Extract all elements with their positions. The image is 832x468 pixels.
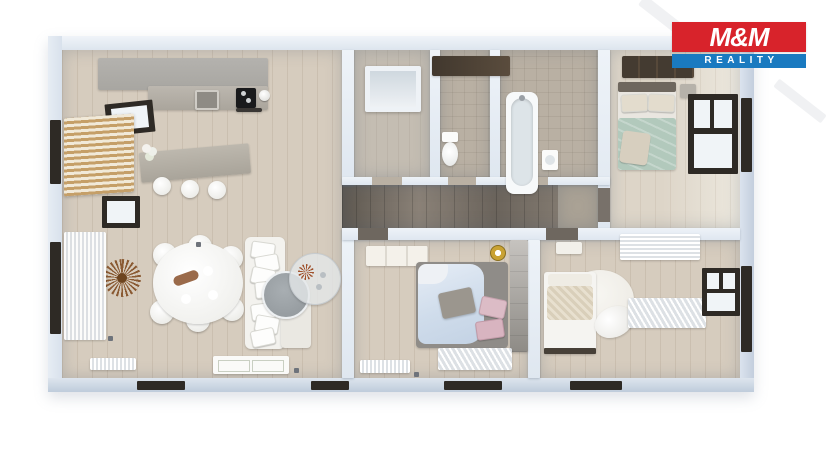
corridor-end-mat [558,185,598,228]
bedroom1-throw [619,130,651,166]
window-bottom-bedroom3 [570,381,622,390]
bedroom1-pillow [648,93,676,112]
curtain-left [64,232,106,340]
bedroom3-nightstand [556,242,582,254]
wall-living-bedroom [342,228,354,378]
glassware [320,272,326,278]
floor-socket [108,336,113,341]
logo-tagline-box: REALITY [672,54,806,68]
door-bedroom3 [546,228,578,240]
wall-bedroom2-bedroom3 [528,240,540,378]
bedroom1-window [688,94,738,174]
bedroom3-footboard [544,348,596,354]
entry-wardrobe [432,56,510,76]
door-mat [218,360,250,372]
door-entry-corridor [372,177,402,185]
window-left-bottom [50,242,61,334]
window-bottom-bedroom2 [444,381,502,390]
floor-socket [196,242,201,247]
bedroom2-wardrobe [510,240,528,352]
window-right-bedroom3 [741,266,752,352]
basin-bowl [545,155,555,165]
bedroom3-sheer-curtain-side [628,298,706,328]
logo-tagline-text: REALITY [699,56,778,66]
terrace-window [102,196,140,228]
bedroom3-window [702,268,740,316]
bedroom2-radiator [360,360,410,373]
door-bedroom1 [598,188,610,222]
bedroom3-blanket [547,286,593,320]
bar-stool [181,180,199,198]
wall-living-entry [342,50,354,185]
wood-slat-wall [64,114,134,197]
toilet-tank [442,132,458,142]
bedroom1-pillow [621,93,649,112]
glass-entry-door [365,66,421,112]
burner [241,91,246,96]
flower-decor [298,264,314,280]
floor-plan-screenshot: M&M REALITY [0,0,832,468]
oven-front [236,108,262,112]
ceiling-lamp [490,245,506,261]
bath-faucet [519,95,525,101]
bedroom3-sheer-curtain-top [620,234,700,260]
logo-brand-text: M&M [709,24,768,50]
bedroom2-pillow-pink [475,318,505,341]
window-left-top [50,120,61,184]
dining-table [153,242,243,324]
bedroom1-headboard [618,82,676,92]
floor-socket [414,372,419,377]
glass-side-table [289,253,341,305]
logo-brand-box: M&M [672,22,806,52]
bedroom2-sheer-curtain [438,348,512,370]
outer-wall-left [48,36,62,392]
door-toilet-corridor [448,177,476,185]
toilet-bowl [442,142,458,166]
window-right-bedroom1 [741,98,752,172]
bar-stool [208,181,226,199]
bar-stool [153,177,171,195]
mm-reality-logo: M&M REALITY [672,22,806,68]
apartment-floor-plan [48,36,754,392]
plate [203,266,213,276]
burner [246,98,251,103]
bathtub-basin [511,98,533,186]
radiator [90,358,136,370]
bedroom3-pillow [548,274,592,286]
watermark-shape [773,79,826,124]
window-bottom-living-2 [311,381,349,390]
outer-wall-top [48,36,754,50]
floor-socket [294,368,299,373]
wall-clock [103,259,141,297]
island-plant [142,144,151,153]
door-bedroom2 [358,228,388,240]
door-mat [252,360,284,372]
window-bottom-living-1 [137,381,185,390]
kitchen-sink [195,90,219,110]
coffee-machine [259,90,270,101]
